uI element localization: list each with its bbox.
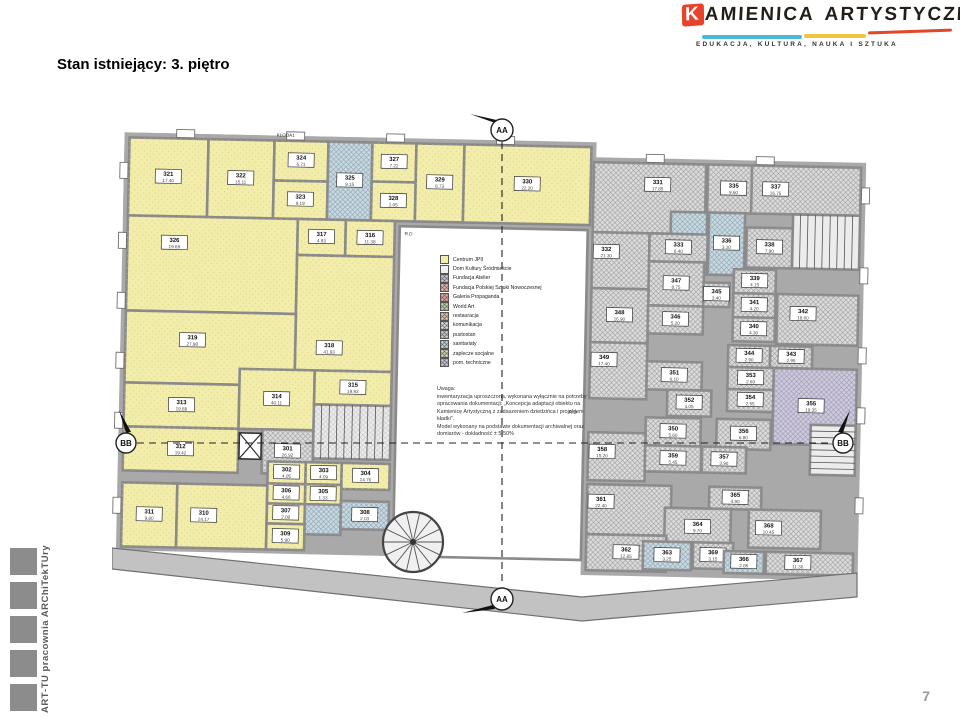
svg-text:3.90: 3.90: [719, 461, 728, 466]
page-title: Stan istniejący: 3. piętro: [57, 56, 230, 73]
svg-text:367: 367: [793, 558, 804, 564]
svg-text:345: 345: [711, 289, 722, 295]
legend-label: zaplecze socjalne: [453, 351, 494, 357]
room-350: 3505.60: [645, 417, 701, 446]
studio-name-sep: -: [40, 688, 51, 692]
svg-text:369: 369: [708, 550, 719, 556]
room-336: 3363.10: [708, 213, 745, 276]
svg-text:317: 317: [317, 232, 328, 238]
svg-text:41.93: 41.93: [323, 349, 335, 354]
svg-text:19.88: 19.88: [176, 406, 188, 411]
room-324: 3246.71: [274, 141, 329, 182]
svg-text:7.90: 7.90: [765, 249, 774, 254]
room-337: 33716.75: [751, 166, 861, 216]
svg-text:9.70: 9.70: [693, 528, 702, 533]
svg-text:365: 365: [730, 493, 741, 499]
svg-text:352: 352: [684, 398, 695, 404]
svg-text:346: 346: [670, 314, 681, 320]
svg-text:328: 328: [388, 196, 399, 202]
svg-text:349: 349: [599, 355, 610, 361]
logo-underline-yellow: [804, 34, 866, 38]
legend-swatch: [440, 340, 449, 349]
svg-text:341: 341: [749, 300, 760, 306]
logo-word2: ARTYSTYCZNA: [824, 4, 960, 25]
slide: { "page": { "title": "Stan istniejący: 3…: [0, 0, 960, 720]
legend-label: Centrum JPII: [453, 257, 483, 263]
section-bb-right-label: BB: [837, 439, 849, 448]
room-327: 3277.22: [372, 143, 417, 183]
room-341: 3414.20: [733, 293, 775, 318]
legend-item: komunikacja: [440, 321, 580, 330]
svg-text:15.20: 15.20: [596, 453, 608, 458]
svg-text:312: 312: [176, 444, 187, 450]
legend-label: Fundacja Atelier: [453, 275, 490, 281]
room-unlabeled: [304, 504, 341, 535]
room-351: 3516.10: [646, 361, 702, 390]
room-311: 3119.80: [121, 482, 177, 547]
svg-text:326: 326: [169, 238, 180, 244]
right-staircase-top: [792, 214, 860, 269]
room-306: 3064.66: [267, 483, 305, 504]
svg-text:302: 302: [282, 467, 293, 473]
legend-swatch: [440, 302, 449, 311]
legend-swatch: [440, 293, 449, 302]
svg-text:5.90: 5.90: [281, 538, 290, 543]
svg-text:6.40: 6.40: [674, 249, 683, 254]
legend-item: pom. techniczne: [440, 358, 580, 367]
svg-text:9.60: 9.60: [729, 190, 738, 195]
svg-text:26.92: 26.92: [282, 453, 294, 458]
page-number: 7: [922, 688, 930, 704]
svg-text:24.17: 24.17: [198, 517, 210, 522]
svg-text:1.33: 1.33: [319, 495, 328, 500]
brand-square: [10, 650, 37, 677]
room-365: 3654.90: [709, 487, 761, 510]
svg-text:2.03: 2.03: [360, 516, 369, 521]
legend-swatch: [440, 283, 449, 292]
room-348: 34816.90: [590, 288, 648, 343]
room-329: 3298.73: [415, 143, 465, 222]
room-356: 3566.80: [716, 419, 771, 450]
studio-brand: ART-TU pracownia ARChiTekTUry: [10, 548, 70, 713]
svg-text:336: 336: [721, 238, 732, 244]
legend-swatch: [440, 349, 449, 358]
svg-text:324: 324: [296, 155, 307, 161]
svg-text:22.20: 22.20: [521, 185, 533, 190]
svg-text:10.45: 10.45: [763, 530, 775, 535]
svg-text:315: 315: [348, 383, 359, 389]
svg-text:310: 310: [199, 510, 210, 516]
svg-text:3.15: 3.15: [708, 556, 717, 561]
brand-logo-text: KAMIENICAARTYSTYCZNA: [681, 4, 952, 26]
room-322: 32215.11: [207, 139, 275, 218]
svg-text:368: 368: [764, 523, 775, 529]
svg-text:40.11: 40.11: [271, 400, 283, 405]
room-304: 30414.76: [341, 463, 390, 490]
logo-k-badge: K: [682, 3, 704, 26]
svg-text:4.05: 4.05: [685, 404, 694, 409]
svg-text:335: 335: [729, 184, 740, 190]
svg-text:331: 331: [653, 180, 664, 186]
room-316: 31611.38: [345, 220, 395, 257]
svg-text:337: 337: [771, 184, 782, 190]
room-358: 35815.20: [588, 432, 646, 481]
main-staircase: [313, 404, 391, 460]
svg-text:354: 354: [745, 395, 756, 401]
svg-text:307: 307: [281, 508, 292, 514]
svg-text:17.40: 17.40: [162, 178, 174, 183]
logo-subtitle: EDUKACJA, KULTURA, NAUKA I SZTUKA: [696, 41, 898, 48]
legend-item: Centrum JPII: [440, 255, 580, 264]
legend-label: komunikacja: [453, 322, 482, 328]
svg-text:9.15: 9.15: [345, 182, 354, 187]
svg-text:350: 350: [668, 426, 679, 432]
brand-square: [10, 684, 37, 711]
legend-item: pustostan: [440, 330, 580, 339]
room-347: 3478.75: [648, 261, 704, 306]
room-325: 3259.15: [327, 142, 373, 221]
svg-text:19.93: 19.93: [347, 389, 359, 394]
svg-text:2.08: 2.08: [281, 515, 290, 520]
legend-label: Galeria Propaganda: [453, 294, 499, 300]
svg-text:311: 311: [144, 509, 154, 515]
studio-name-part1: ART: [40, 692, 51, 713]
room-357: 3573.90: [702, 447, 747, 474]
legend-item: Fundacja Polskiej Sztuki Nowoczesnej: [440, 283, 580, 292]
svg-text:11.30: 11.30: [792, 564, 804, 569]
legend-item: Fundacja Atelier: [440, 274, 580, 283]
svg-text:314: 314: [272, 394, 283, 400]
svg-text:327: 327: [389, 157, 400, 163]
room-318: 31841.93: [295, 255, 394, 372]
svg-text:27.98: 27.98: [186, 342, 198, 347]
section-bb-left-label: BB: [120, 439, 132, 448]
svg-text:309: 309: [280, 531, 291, 537]
svg-text:19.42: 19.42: [175, 450, 187, 455]
section-aa-top-label: AA: [496, 126, 508, 135]
room-332: 33221.30: [592, 232, 650, 289]
svg-text:321: 321: [163, 172, 174, 178]
svg-text:359: 359: [668, 453, 679, 459]
room-359: 3595.45: [645, 445, 702, 472]
svg-text:4.15: 4.15: [750, 282, 759, 287]
legend-item: sanitariaty: [440, 340, 580, 349]
room-328: 3281.05: [371, 182, 416, 222]
room-367: 36711.30: [766, 552, 853, 576]
legend-swatch: [440, 255, 449, 264]
svg-text:3.25: 3.25: [662, 557, 671, 562]
svg-text:8.75: 8.75: [672, 285, 681, 290]
legend-swatch: [440, 312, 449, 321]
room-361: 36122.40: [586, 484, 671, 536]
legend-item: Galeria Propaganda: [440, 293, 580, 302]
svg-text:313: 313: [176, 400, 187, 406]
svg-text:2.85: 2.85: [739, 563, 748, 568]
svg-text:4.30: 4.30: [749, 330, 758, 335]
svg-text:8.73: 8.73: [435, 184, 444, 189]
legend-label: World Art: [453, 304, 474, 310]
svg-text:4.05: 4.05: [282, 474, 291, 479]
legend-label: Fundacja Polskiej Sztuki Nowoczesnej: [453, 285, 542, 291]
room-349: 34917.40: [589, 342, 647, 399]
svg-text:301: 301: [283, 446, 294, 452]
room-317: 3174.93: [297, 219, 346, 256]
legend-swatch: [440, 274, 449, 283]
svg-text:305: 305: [318, 489, 329, 495]
legend-label: pustostan: [453, 332, 476, 338]
svg-text:322: 322: [236, 173, 247, 179]
svg-text:4.90: 4.90: [731, 499, 740, 504]
room-352: 3524.05: [667, 390, 712, 417]
svg-text:338: 338: [764, 242, 775, 248]
legend-item: restauracja: [440, 311, 580, 320]
svg-text:19.35: 19.35: [805, 407, 817, 412]
legend-label: Dom Kultury Śródmieście: [453, 266, 512, 272]
svg-text:355: 355: [806, 401, 817, 407]
svg-text:353: 353: [746, 373, 757, 379]
svg-text:340: 340: [749, 324, 760, 330]
svg-text:11.38: 11.38: [364, 239, 376, 244]
room-343: 3432.95: [770, 346, 812, 369]
svg-text:308: 308: [360, 510, 371, 516]
brand-square: [10, 582, 37, 609]
room-313: 31319.88: [124, 382, 240, 428]
svg-text:4.09: 4.09: [319, 474, 328, 479]
spiral-staircase: [383, 512, 443, 572]
svg-text:343: 343: [786, 352, 797, 358]
legend-swatch: [440, 265, 449, 274]
svg-text:14.76: 14.76: [360, 477, 372, 482]
room-307: 3072.08: [267, 503, 305, 524]
logo-underline-cyan: [702, 35, 802, 39]
brand-logo: KAMIENICAARTYSTYCZNA EDUKACJA, KULTURA, …: [682, 4, 952, 56]
room-314: 31440.11: [239, 369, 315, 431]
svg-text:333: 333: [673, 242, 684, 248]
room-340: 3404.30: [732, 317, 774, 342]
room-338: 3387.90: [746, 227, 793, 268]
logo-word1: AMIENICA: [704, 4, 815, 25]
svg-text:16.75: 16.75: [770, 191, 782, 196]
legend-swatch: [440, 330, 449, 339]
brand-square: [10, 616, 37, 643]
svg-text:3.40: 3.40: [712, 295, 721, 300]
svg-text:4.93: 4.93: [317, 238, 326, 243]
svg-text:15.11: 15.11: [235, 179, 247, 184]
room-368: 36810.45: [748, 510, 821, 549]
svg-text:303: 303: [319, 468, 330, 474]
svg-text:363: 363: [662, 550, 673, 556]
svg-text:361: 361: [596, 497, 607, 503]
section-aa-bottom-label: AA: [496, 595, 508, 604]
studio-name-part2: TU pracownia ARChiTekTUry: [40, 545, 51, 688]
legend-swatch: [440, 321, 449, 330]
room-363: 3633.25: [643, 541, 692, 570]
elevator-shaft: [239, 433, 262, 459]
room-308: 3082.03: [340, 501, 389, 530]
svg-text:357: 357: [719, 454, 730, 460]
svg-text:347: 347: [671, 278, 682, 284]
svg-text:21.30: 21.30: [600, 253, 612, 258]
svg-text:318: 318: [324, 343, 335, 349]
svg-text:17.40: 17.40: [598, 361, 610, 366]
svg-text:342: 342: [798, 309, 809, 315]
room-344: 3442.90: [728, 345, 770, 368]
svg-text:16.90: 16.90: [614, 316, 626, 321]
studio-name: ART-TU pracownia ARChiTekTUry: [40, 548, 51, 713]
svg-text:316: 316: [365, 233, 376, 239]
svg-text:344: 344: [744, 351, 755, 357]
room-305: 3051.33: [305, 484, 341, 505]
legend-item: World Art: [440, 302, 580, 311]
note-text: Uwaga: inwentaryzacja uproszczona, wykon…: [437, 386, 589, 439]
svg-text:2.60: 2.60: [746, 379, 755, 384]
svg-text:6.80: 6.80: [739, 435, 748, 440]
svg-text:356: 356: [738, 429, 749, 435]
svg-text:358: 358: [597, 447, 608, 453]
svg-text:364: 364: [693, 522, 704, 528]
svg-text:18.60: 18.60: [797, 315, 809, 320]
svg-text:12.85: 12.85: [620, 554, 632, 559]
svg-text:2.90: 2.90: [745, 357, 754, 362]
svg-text:2.95: 2.95: [787, 358, 796, 363]
room-339: 3394.15: [733, 269, 775, 294]
svg-text:306: 306: [281, 488, 292, 494]
legend: Centrum JPIIDom Kultury ŚródmieścieFunda…: [440, 255, 580, 368]
legend-item: Dom Kultury Śródmieście: [440, 264, 580, 273]
rd-annotation-1: R.D: [405, 231, 414, 236]
room-303: 3034.09: [305, 462, 341, 485]
svg-text:5.20: 5.20: [671, 321, 680, 326]
legend-item: zaplecze socjalne: [440, 349, 580, 358]
room-326: 32619.69: [126, 215, 298, 314]
svg-text:4.66: 4.66: [282, 495, 291, 500]
svg-text:323: 323: [295, 194, 306, 200]
room-315: 31519.93: [314, 370, 392, 406]
svg-text:366: 366: [739, 557, 750, 563]
room-309: 3095.90: [266, 523, 305, 550]
room-353: 3532.60: [727, 367, 773, 390]
room-366: 3662.85: [724, 551, 764, 574]
svg-text:7.22: 7.22: [390, 163, 399, 168]
svg-text:348: 348: [614, 310, 625, 316]
svg-text:1.05: 1.05: [389, 202, 398, 207]
svg-text:3.10: 3.10: [722, 245, 731, 250]
svg-text:22.40: 22.40: [595, 503, 607, 508]
stair-annotation: KLODA1: [277, 133, 296, 138]
room-302: 3024.05: [267, 461, 305, 484]
room-345: 3453.40: [703, 283, 729, 308]
svg-text:2.55: 2.55: [746, 401, 755, 406]
svg-text:362: 362: [621, 547, 632, 553]
svg-text:9.19: 9.19: [296, 201, 305, 206]
svg-text:4.20: 4.20: [750, 306, 759, 311]
svg-text:330: 330: [522, 179, 533, 185]
svg-text:6.10: 6.10: [670, 377, 679, 382]
room-342: 34218.60: [776, 294, 858, 346]
svg-text:9.80: 9.80: [145, 516, 154, 521]
svg-text:304: 304: [361, 471, 372, 477]
svg-text:351: 351: [669, 370, 680, 376]
svg-text:319: 319: [187, 335, 198, 341]
svg-text:6.71: 6.71: [297, 162, 306, 167]
svg-text:19.69: 19.69: [169, 244, 181, 249]
room-310: 31024.17: [176, 484, 267, 550]
legend-label: pom. techniczne: [453, 360, 491, 366]
legend-swatch: [440, 358, 449, 367]
svg-text:5.45: 5.45: [668, 460, 677, 465]
svg-text:339: 339: [750, 276, 761, 282]
room-323: 3239.19: [273, 180, 328, 219]
room-333: 3336.40: [649, 233, 708, 262]
logo-underline-red: [868, 29, 952, 35]
legend-label: sanitariaty: [453, 341, 477, 347]
svg-text:332: 332: [601, 247, 612, 253]
room-346: 3465.20: [648, 305, 704, 334]
svg-text:17.85: 17.85: [652, 186, 664, 191]
brand-square: [10, 548, 37, 575]
room-312: 31219.42: [123, 426, 239, 472]
legend-label: restauracja: [453, 313, 479, 319]
room-354: 3542.55: [727, 389, 773, 412]
svg-text:5.60: 5.60: [668, 433, 677, 438]
room-330: 33022.20: [463, 144, 592, 225]
svg-text:325: 325: [345, 175, 356, 181]
room-321: 32117.40: [128, 137, 209, 217]
svg-text:329: 329: [435, 177, 446, 183]
